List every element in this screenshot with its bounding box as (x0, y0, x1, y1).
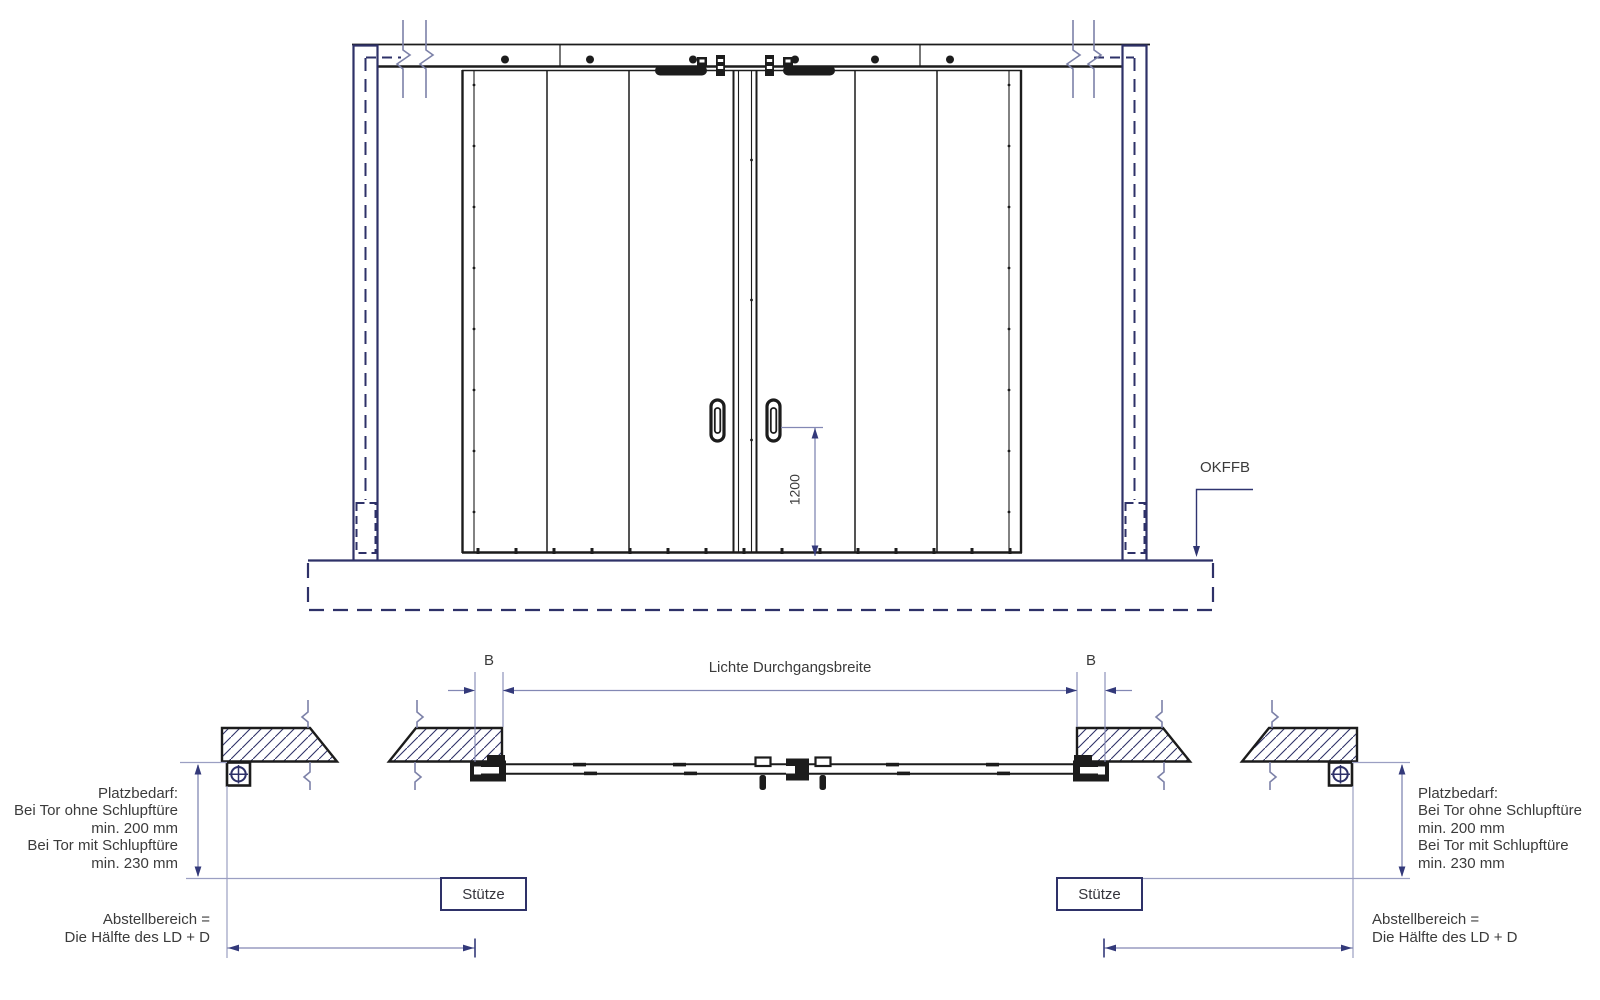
platzbedarf-line: Platzbedarf: (0, 785, 178, 802)
elevation-view (308, 20, 1253, 610)
platzbedarf-line: Bei Tor ohne Schlupftüre (1418, 802, 1600, 819)
arrow-up-icon (1399, 764, 1406, 775)
wall-far-left (222, 728, 337, 762)
platzbedarf-text-left: Platzbedarf: Bei Tor ohne Schlupftüre mi… (0, 785, 178, 872)
arrow-up-icon (195, 764, 202, 775)
arrow-left-icon (228, 945, 239, 952)
abstellbereich-text-right: Abstellbereich = Die Hälfte des LD + D (1372, 911, 1600, 947)
top-track (352, 45, 1150, 67)
abstellbereich-line: Abstellbereich = (1372, 911, 1600, 929)
clear-width-label: Lichte Durchgangsbreite (665, 659, 915, 676)
platzbedarf-dimension-right (1139, 763, 1410, 879)
platzbedarf-line: Platzbedarf: (1418, 785, 1600, 802)
arrow-left-icon (1105, 945, 1116, 952)
door-handle-right (767, 400, 780, 441)
arrow-down-icon (812, 546, 819, 557)
abstellbereich-dimension-left (227, 786, 475, 958)
arrow-down-icon (1399, 867, 1406, 878)
arrow-right-icon (463, 945, 474, 952)
plan-view (180, 672, 1410, 958)
wall-mid-left (389, 728, 502, 762)
abstellbereich-line: Die Hälfte des LD + D (1372, 929, 1600, 947)
arrow-down-icon (1193, 546, 1200, 557)
stile-fastener-dots (473, 84, 1011, 514)
b-dimension-label-right: B (1073, 652, 1109, 669)
platzbedarf-dimension-left (180, 763, 440, 879)
foundation-slab (308, 561, 1213, 611)
arrow-left-icon (503, 687, 514, 694)
column-right (1094, 46, 1147, 561)
clear-width-dimension (448, 672, 1132, 762)
arrow-right-icon (464, 687, 475, 694)
height-dimension-label: 1200 (786, 467, 803, 513)
stuetze-box-right: Stütze (1056, 877, 1143, 911)
technical-drawing-page: OKFFB 1200 B B Lichte Durchgangsbreite P… (0, 0, 1600, 1000)
b-dimension-label-left: B (471, 652, 507, 669)
wall-mid-right (1077, 728, 1190, 762)
platzbedarf-text-right: Platzbedarf: Bei Tor ohne Schlupftüre mi… (1418, 785, 1600, 872)
platzbedarf-line: min. 200 mm (0, 820, 178, 837)
wall-sections (222, 728, 1357, 762)
okffb-label: OKFFB (1200, 459, 1270, 476)
door-handle-left (711, 400, 724, 441)
platzbedarf-line: Bei Tor ohne Schlupftüre (0, 802, 178, 819)
okffb-leader (1193, 490, 1253, 558)
abstellbereich-text-left: Abstellbereich = Die Hälfte des LD + D (0, 911, 210, 947)
abstellbereich-dimension-right (1104, 786, 1353, 958)
column-axis-icon (1329, 763, 1352, 786)
arrow-right-icon (1066, 687, 1077, 694)
track-bolt-dots (501, 56, 954, 64)
abstellbereich-line: Die Hälfte des LD + D (0, 929, 210, 947)
wall-far-right (1242, 728, 1357, 762)
platzbedarf-line: min. 200 mm (1418, 820, 1600, 837)
arrow-left-icon (1105, 687, 1116, 694)
platzbedarf-line: min. 230 mm (0, 855, 178, 872)
column-axis-icon (227, 763, 250, 786)
column-left (354, 46, 402, 561)
abstellbereich-line: Abstellbereich = (0, 911, 210, 929)
platzbedarf-line: Bei Tor mit Schlupftüre (0, 837, 178, 854)
stuetze-box-left: Stütze (440, 877, 527, 911)
platzbedarf-line: min. 230 mm (1418, 855, 1600, 872)
arrow-down-icon (195, 867, 202, 878)
arrow-right-icon (1341, 945, 1352, 952)
plan-door-leaf (470, 755, 1109, 790)
door-leaves (462, 70, 1022, 553)
platzbedarf-line: Bei Tor mit Schlupftüre (1418, 837, 1600, 854)
arrow-up-icon (812, 428, 819, 439)
